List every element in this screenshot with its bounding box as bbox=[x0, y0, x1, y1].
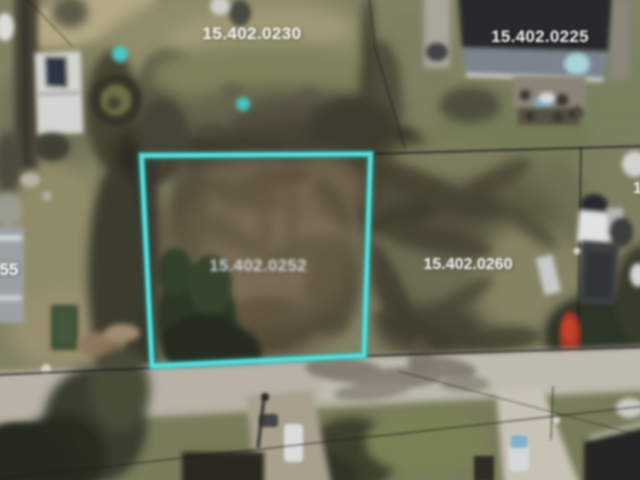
svg-text:15: 15 bbox=[633, 180, 640, 197]
svg-text:15.402.0230: 15.402.0230 bbox=[203, 24, 302, 43]
svg-text:15.402.0260: 15.402.0260 bbox=[424, 256, 513, 273]
svg-text:15.402.0252: 15.402.0252 bbox=[209, 256, 307, 275]
svg-text:15.402.0225: 15.402.0225 bbox=[491, 27, 589, 46]
svg-text:255: 255 bbox=[0, 260, 18, 279]
